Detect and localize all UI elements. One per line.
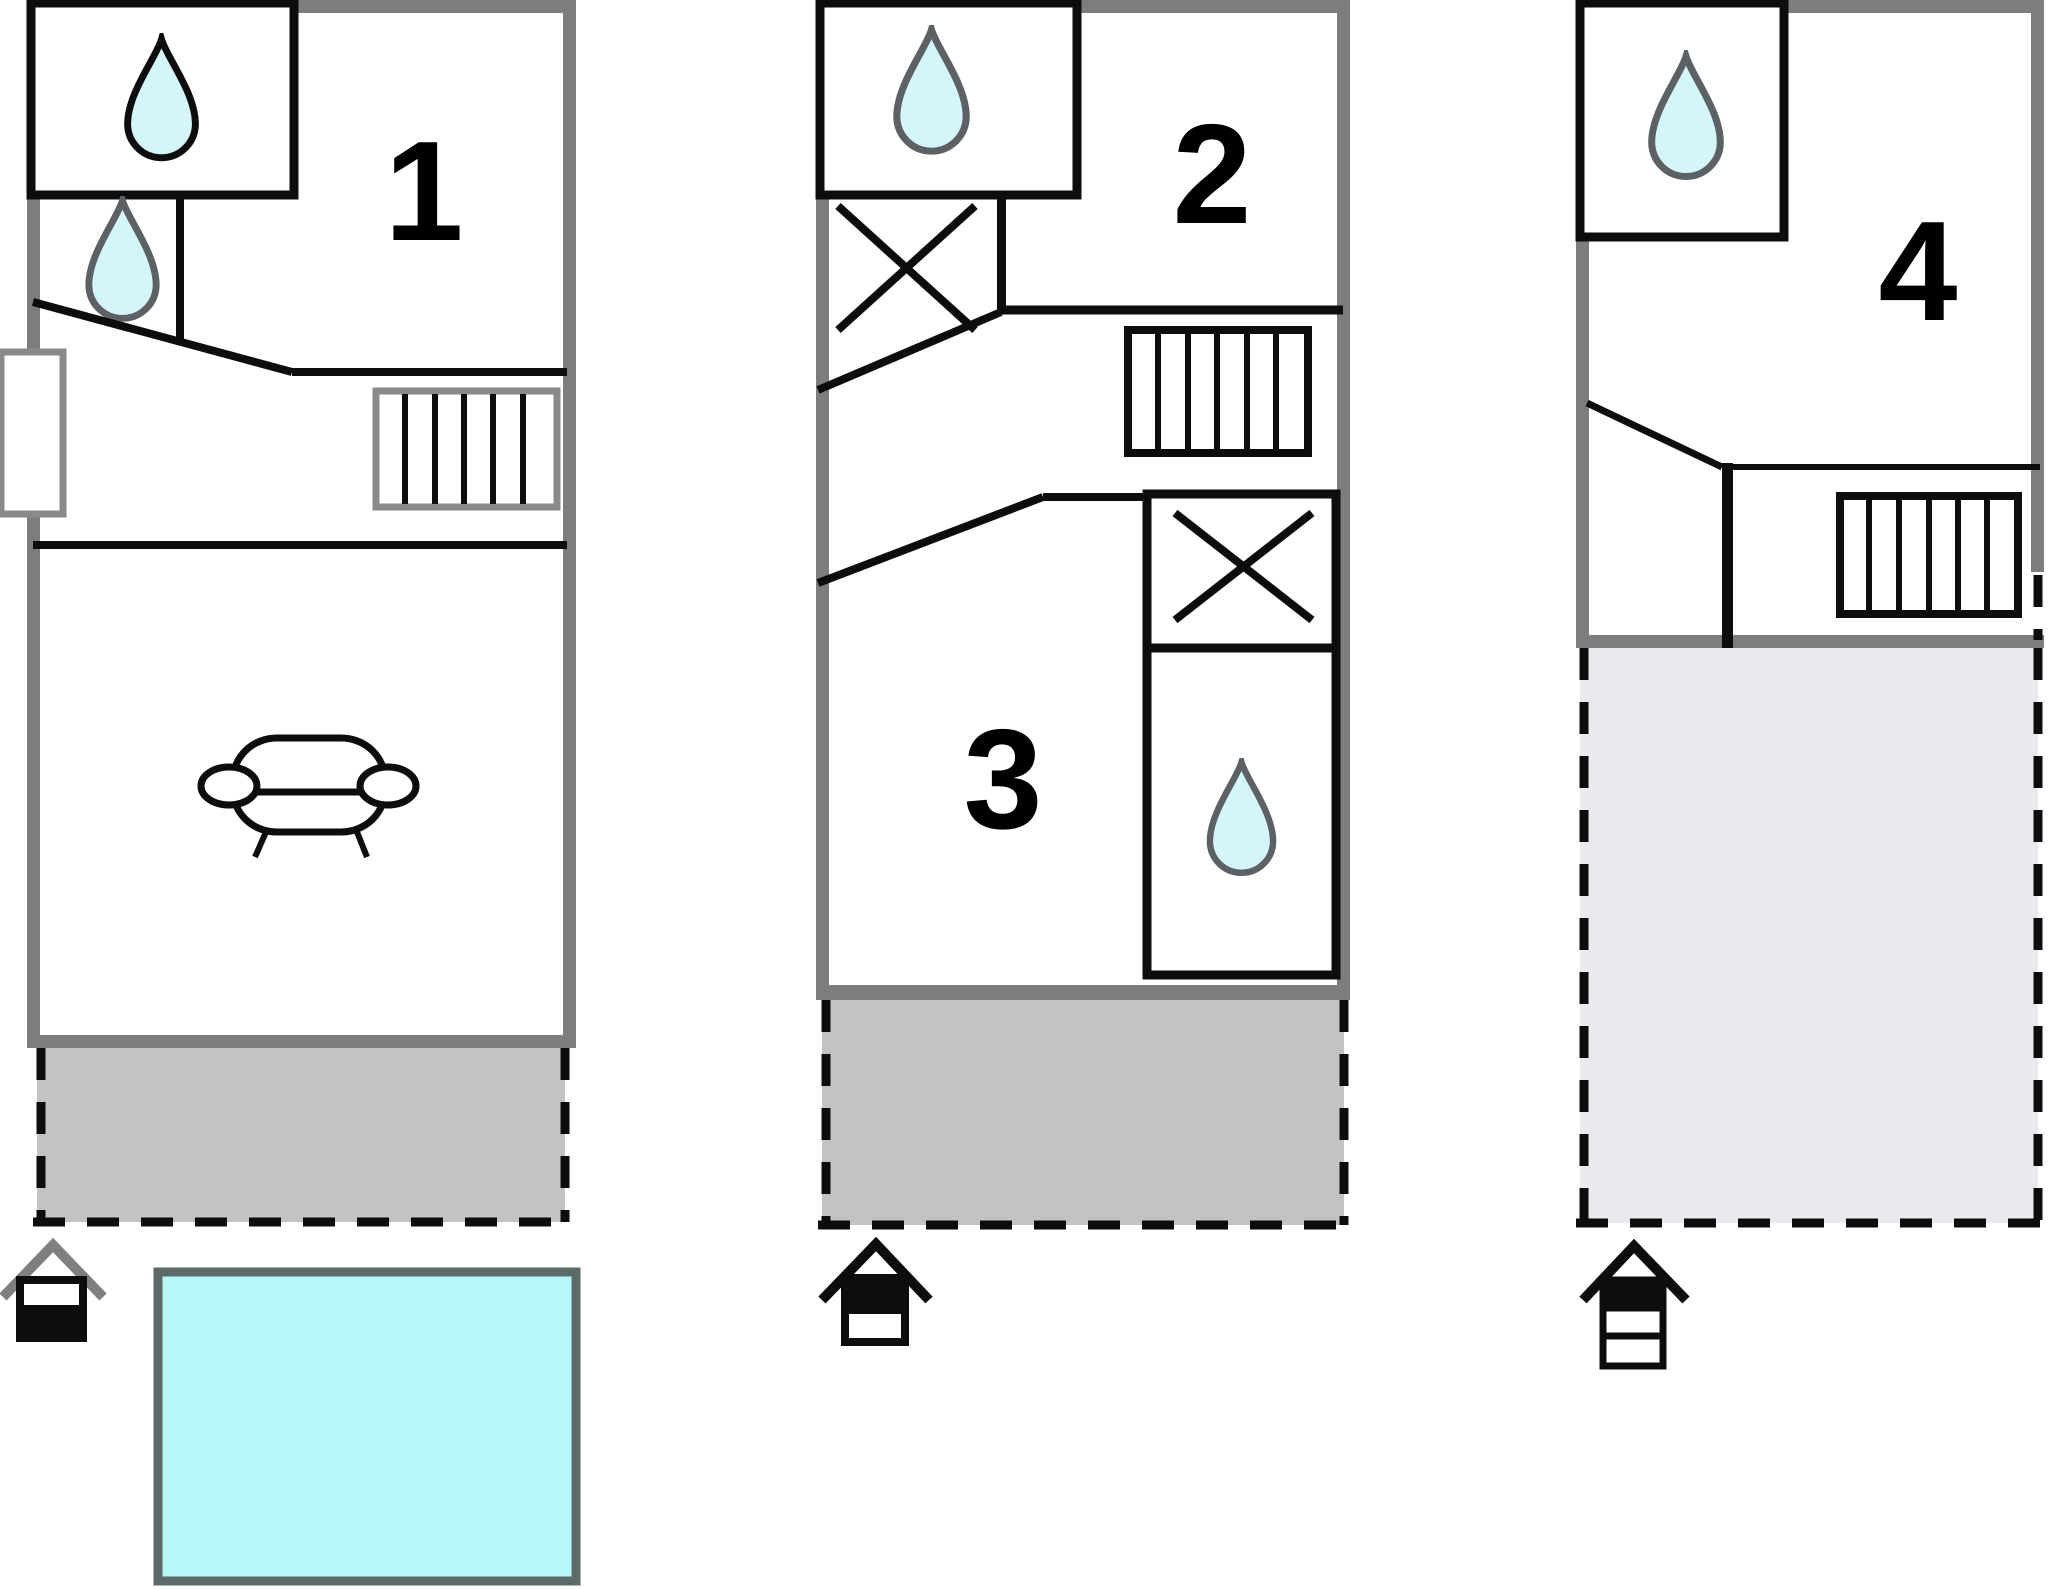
unit-4-plan: 4 <box>1576 0 2044 1366</box>
entrance-level-top-filled <box>1603 1280 1663 1308</box>
sofa-icon <box>201 738 416 857</box>
entrance-house-icon-1 <box>3 1245 103 1338</box>
entrance-level-upper-filled <box>845 1278 905 1310</box>
wall-bottom <box>27 1035 576 1048</box>
window-icon <box>1 352 63 514</box>
pool-shape <box>158 1272 576 1581</box>
unit-3-label: 3 <box>964 700 1043 859</box>
interior-wall-vertical <box>176 192 184 340</box>
interior-wall-vertical <box>997 195 1006 312</box>
floor-plan-page: 1 <box>0 0 2048 1589</box>
entrance-house-icon-4 <box>1583 1246 1686 1366</box>
wall-right <box>2031 0 2044 572</box>
interior-wall-diagonal <box>1587 403 1722 467</box>
terrace-1-area <box>37 1048 565 1222</box>
sofa-armrest-left <box>201 767 257 805</box>
wall-right <box>563 0 576 1048</box>
roof-terrace-area <box>1580 648 2038 1223</box>
sofa-armrest-right <box>360 767 416 805</box>
unit-2-label: 2 <box>1173 95 1252 254</box>
interior-wall-vertical <box>1722 463 1733 648</box>
floor-plan-drawing: 1 <box>0 0 2048 1589</box>
wall-bottom <box>816 985 1350 1000</box>
entrance-house-icon-2 <box>822 1244 929 1342</box>
sofa-leg-left <box>255 832 266 857</box>
wardrobe-x-icon-upper <box>838 206 975 330</box>
entrance-level-lower-filled <box>20 1309 83 1338</box>
wall-bottom <box>1576 635 2044 648</box>
washbasin-drop-icon <box>89 201 156 319</box>
unit-4-label: 4 <box>1879 192 1958 351</box>
stairs-icon <box>1128 330 1308 453</box>
entrance-level-upper <box>20 1280 83 1309</box>
unit-1-plan: 1 <box>1 0 576 1581</box>
sofa-leg-right <box>357 832 367 857</box>
terrace-2-area <box>822 1000 1344 1225</box>
stairs-icon <box>376 391 557 507</box>
unit-2-3-plan: 2 3 <box>816 0 1350 1342</box>
hall-diagonal-wall-lower <box>818 497 1043 583</box>
stairs-icon <box>1840 496 2018 614</box>
unit-1-label: 1 <box>385 112 464 271</box>
interior-wall-diagonal <box>33 302 292 372</box>
